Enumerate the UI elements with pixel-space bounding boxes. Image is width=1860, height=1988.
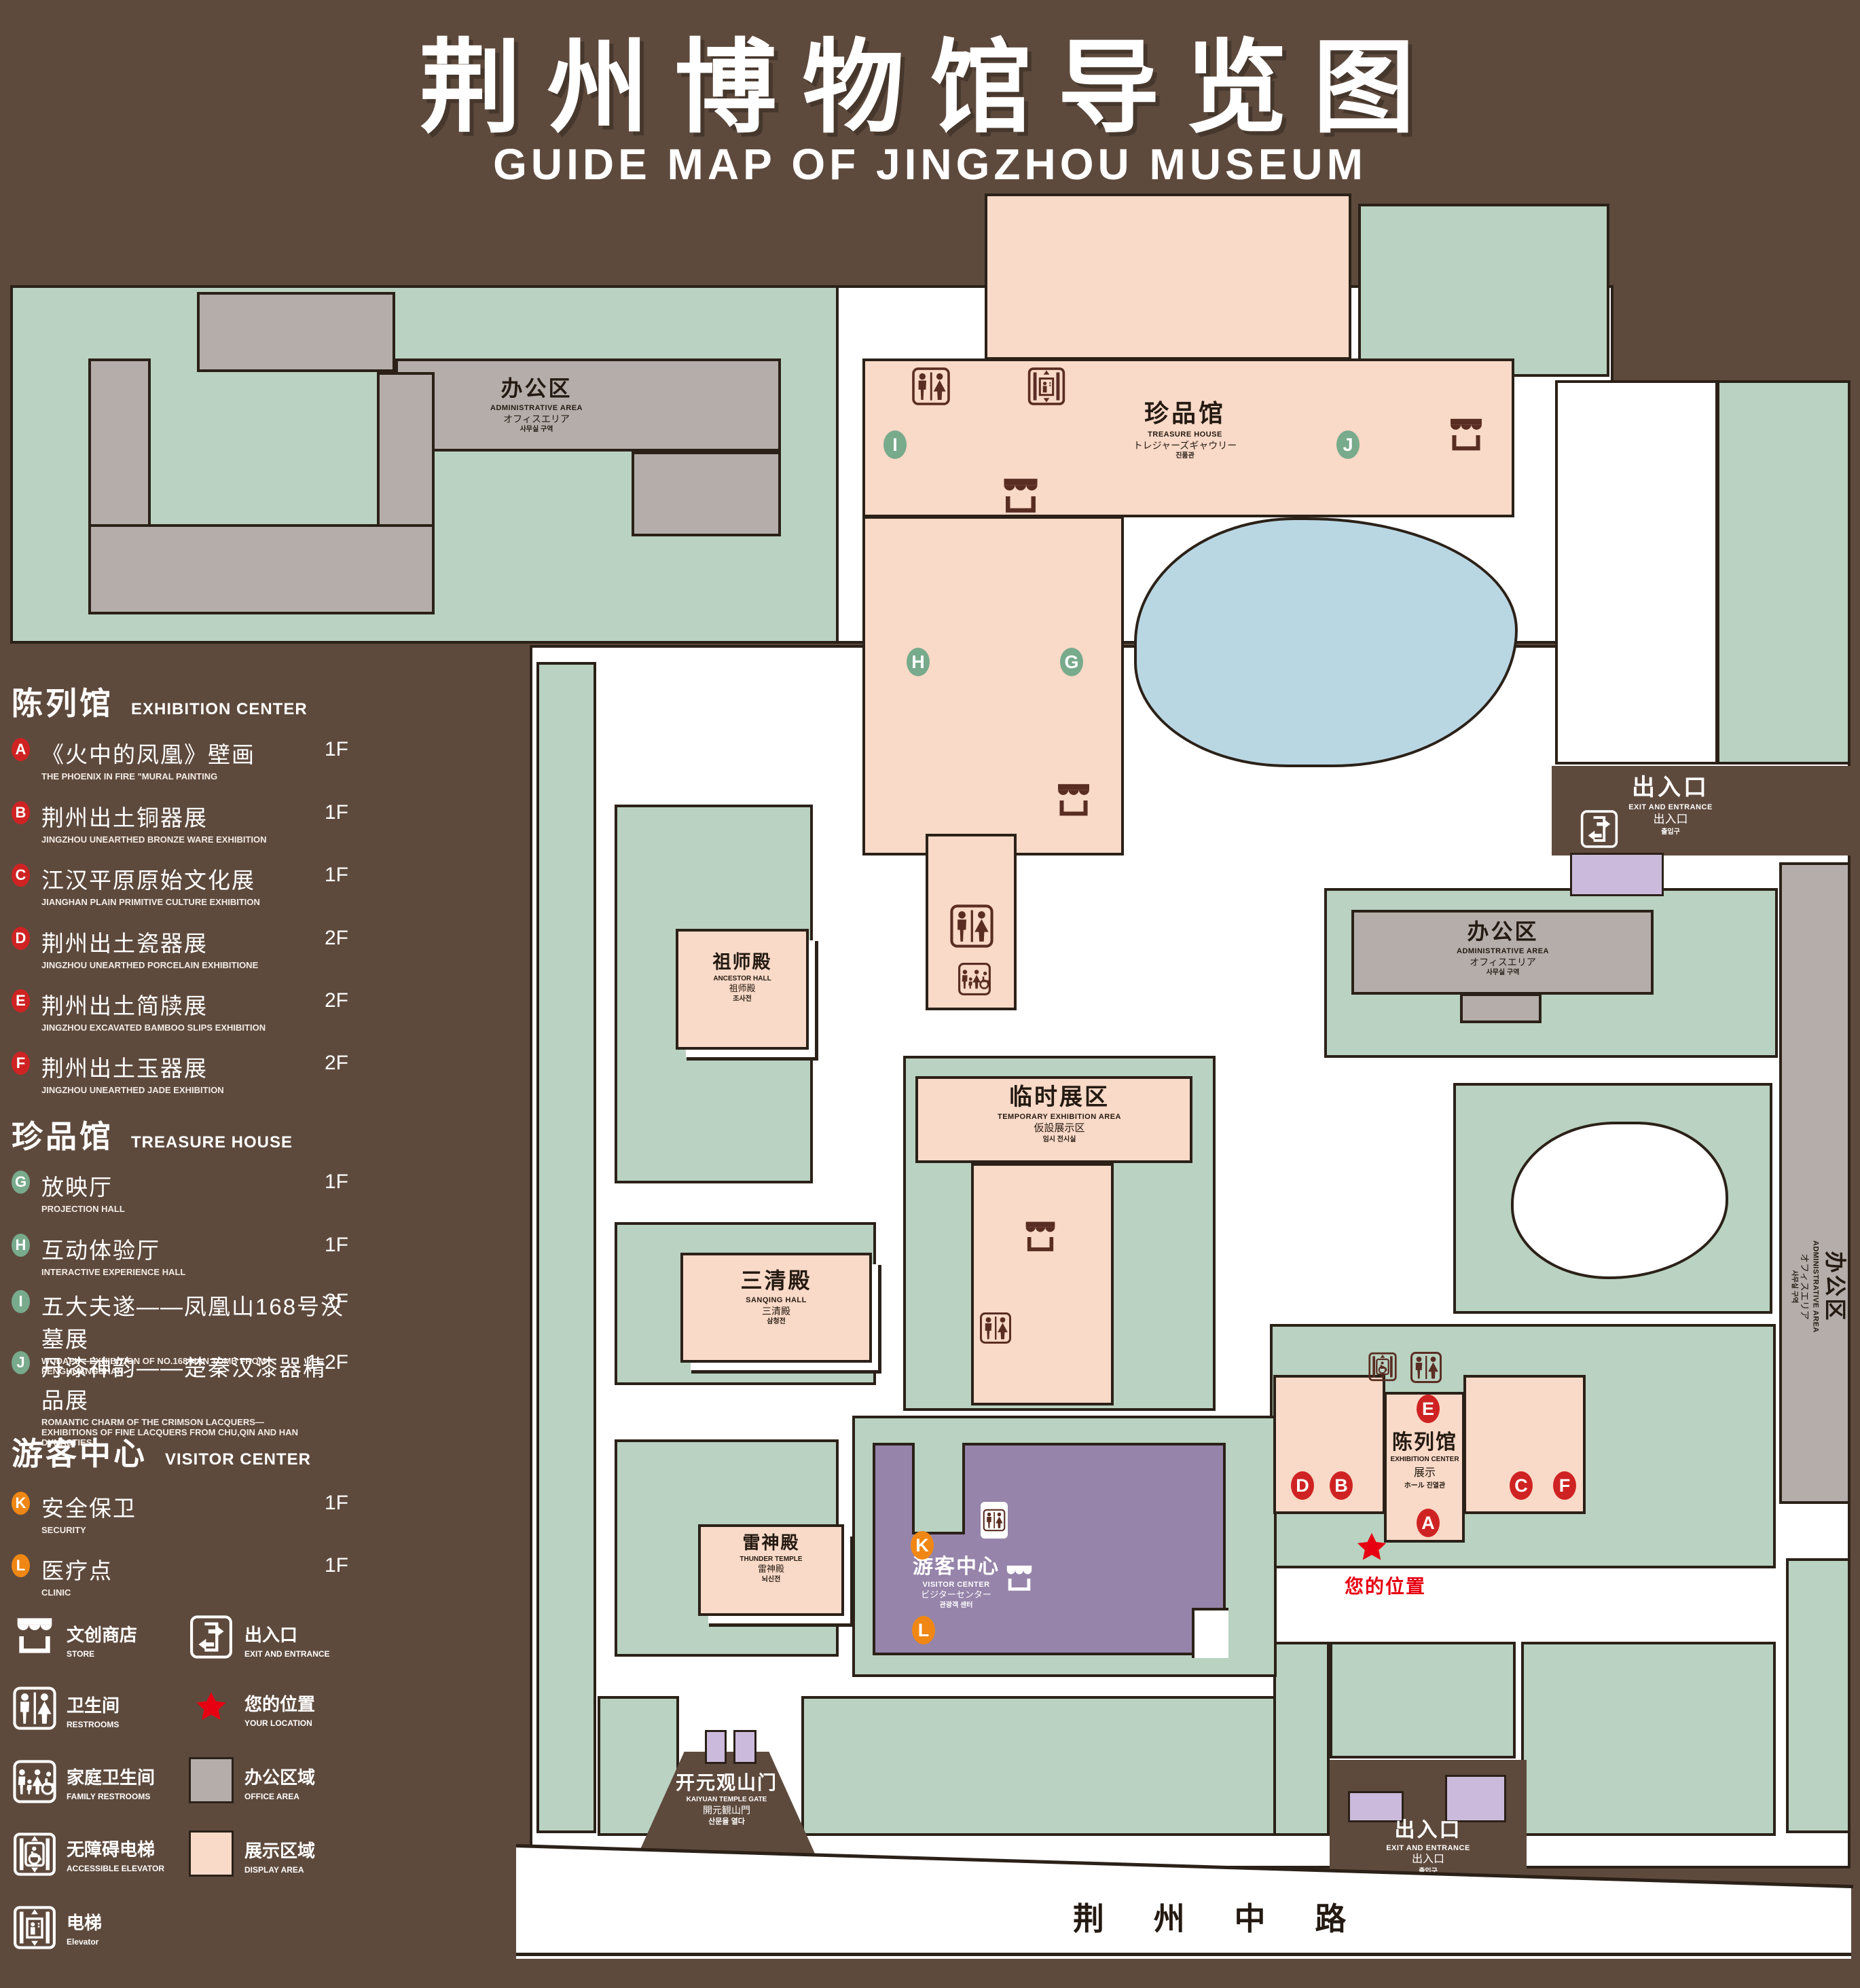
marker-l: L — [912, 1616, 935, 1644]
legend-symbol-accessible-elevator: 无障碍电梯ACCESSIBLE ELEVATOR — [67, 1836, 164, 1873]
marker-k: K — [911, 1531, 934, 1560]
road-edge — [516, 1953, 1851, 1956]
restroom-icon — [12, 1682, 57, 1734]
gate-building — [1445, 1775, 1506, 1822]
store-icon — [12, 1615, 57, 1658]
admin-building-top-left — [88, 524, 435, 614]
legend-item-f: F 荆州出土玉器展JINGZHOU UNEARTHED JADE EXHIBIT… — [12, 1050, 348, 1095]
legend-item-l: L 医疗点CLINIC 1F — [12, 1553, 348, 1598]
green-area — [1786, 1558, 1850, 1833]
sanqing-hall-label: 三清殿 SANQING HALL 三清殿 삼청전 — [680, 1267, 872, 1326]
kaiyuan-gate-label: 开元观山门 KAIYUAN TEMPLE GATE 開元観山門 산문을 열다 — [646, 1771, 807, 1826]
marker-f: F — [1553, 1471, 1576, 1500]
marker-a: A — [1417, 1509, 1440, 1537]
treasure-house-label: 珍品馆 TREASURE HOUSE トレジャーズギャウリー 진품관 — [1070, 398, 1300, 460]
green-area — [1521, 1642, 1776, 1836]
marker-h: H — [907, 648, 930, 676]
accessible-elevator-icon — [12, 1828, 57, 1881]
location-star-icon — [193, 1689, 230, 1726]
store-icon — [1022, 1219, 1059, 1255]
temporary-exhibition-label: 临时展区 TEMPORARY EXHIBITION AREA 仮設展示区 임시 … — [937, 1082, 1182, 1144]
treasure-house-building — [985, 194, 1351, 360]
admin-right-label: 办公区 ADMINISTRATIVE AREA オフィスエリア 사무실 구역 — [1401, 918, 1605, 977]
road-name: 荆 州 中 路 — [1073, 1894, 1366, 1939]
marker-b: B — [1330, 1471, 1353, 1500]
restroom-icon — [1410, 1346, 1442, 1388]
restroom-icon — [949, 898, 994, 955]
family-restroom-icon — [958, 957, 991, 1001]
legend-symbol-store: 文创商店STORE — [67, 1621, 137, 1659]
legend-item-g: G 放映厅PROJECTION HALL 1F — [12, 1169, 348, 1214]
legend-symbol-your-location: 您的位置YOUR LOCATION — [244, 1691, 315, 1728]
display-area-swatch — [189, 1830, 234, 1877]
guide-map-poster: { "title": {"cn": "荆州博物馆导览图", "en": "GUI… — [0, 0, 1860, 1988]
elevator-icon — [1027, 365, 1066, 407]
legend-symbol-family-restrooms: 家庭卫生间FAMILY RESTROOMS — [67, 1764, 155, 1801]
legend-symbol-exit: 出入口EXIT AND ENTRANCE — [244, 1621, 330, 1659]
marker-g: G — [1060, 648, 1083, 676]
your-location-star — [1354, 1530, 1389, 1566]
exit-icon — [189, 1613, 234, 1661]
office-area-swatch — [189, 1757, 234, 1803]
marker-c: C — [1510, 1471, 1533, 1500]
gate-pillar — [733, 1730, 756, 1764]
admin-far-right-label: 办公区 ADMINISTRATIVE AREA オフィスエリア 사무실 구역 — [1781, 1160, 1849, 1414]
admin-building-top-left — [377, 372, 435, 527]
legend-item-h: H 互动体验厅INTERACTIVE EXPERIENCE HALL 1F — [12, 1232, 348, 1277]
family-restroom-icon — [12, 1756, 57, 1807]
legend-symbol-display-area: 展示区域DISPLAY AREA — [244, 1837, 315, 1875]
green-area — [912, 1443, 965, 1534]
admin-top-left-label: 办公区 ADMINISTRATIVE AREA オフィスエリア 사무실 구역 — [435, 375, 638, 434]
exit-icon — [1580, 808, 1619, 850]
green-area — [1717, 380, 1850, 765]
exhibition-center-label: 陈列馆 EXHIBITION CENTER 展示 ホール 진열관 — [1357, 1430, 1493, 1491]
page-title: 荆州博物馆导览图 — [0, 5, 1860, 153]
legend-symbol-restrooms: 卫生间RESTROOMS — [67, 1692, 120, 1729]
page-subtitle: GUIDE MAP OF JINGZHOU MUSEUM — [0, 139, 1860, 189]
marker-i: I — [883, 430, 907, 459]
legend-item-a: A 《火中的凤凰》壁画THE PHOENIX IN FIRE "MURAL PA… — [12, 737, 348, 781]
green-area — [536, 662, 596, 1833]
green-area — [1330, 1642, 1516, 1759]
legend-item-b: B 荆州出土铜器展JINGZHOU UNEARTHED BRONZE WARE … — [12, 800, 348, 845]
store-icon — [1446, 416, 1486, 455]
restroom-icon — [911, 365, 951, 407]
store-icon — [1004, 1563, 1035, 1594]
legend-item-k: K 安全保卫SECURITY 1F — [12, 1490, 348, 1535]
temporary-exhibition-building — [971, 1163, 1114, 1405]
admin-building-top-left — [632, 452, 781, 536]
legend-item-d: D 荆州出土瓷器展JINGZHOU UNEARTHED PORCELAIN EX… — [12, 925, 348, 970]
legend-section-treasure-house: 珍品馆TREASURE HOUSE — [12, 1112, 293, 1157]
store-icon — [1054, 781, 1093, 820]
accessible-elevator-icon — [1368, 1346, 1398, 1387]
restroom-icon — [981, 1502, 1008, 1539]
legend-item-c: C 江汉平原原始文化展JIANGHAN PLAIN PRIMITIVE CULT… — [12, 862, 348, 907]
marker-e: E — [1417, 1395, 1440, 1423]
green-area — [801, 1696, 1290, 1836]
exit-bottom-label: 出入口 EXIT AND ENTRANCE 出入口 출입구 — [1350, 1817, 1506, 1876]
your-location-label: 您的位置 — [1324, 1572, 1446, 1599]
legend-item-e: E 荆州出土简牍展JINGZHOU EXCAVATED BAMBOO SLIPS… — [12, 988, 348, 1033]
marker-d: D — [1291, 1471, 1314, 1500]
legend-symbol-elevator: 电梯Elevator — [67, 1909, 102, 1947]
thunder-temple-label: 雷神殿 THUNDER TEMPLE 雷神殿 뇌신전 — [698, 1532, 844, 1584]
gate-building — [1570, 853, 1664, 896]
green-area — [1273, 1642, 1330, 1836]
store-icon — [1000, 475, 1042, 517]
path-notch — [1192, 1608, 1228, 1658]
ancestor-hall-label: 祖师殿 ANCESTOR HALL 祖师殿 조사전 — [676, 951, 809, 1004]
legend-section-exhibition-center: 陈列馆EXHIBITION CENTER — [12, 679, 308, 724]
legend-symbol-office-area: 办公区域OFFICE AREA — [244, 1764, 315, 1801]
green-area — [1358, 204, 1609, 377]
elevator-icon — [12, 1900, 57, 1955]
restroom-icon — [979, 1307, 1012, 1349]
marker-j: J — [1336, 430, 1360, 459]
legend-section-visitor-center: 游客中心VISITOR CENTER — [12, 1429, 311, 1474]
admin-building-right — [1460, 993, 1542, 1023]
map-base-topright — [1555, 380, 1718, 765]
gate-pillar — [705, 1730, 727, 1764]
admin-building-top-left — [197, 292, 395, 372]
